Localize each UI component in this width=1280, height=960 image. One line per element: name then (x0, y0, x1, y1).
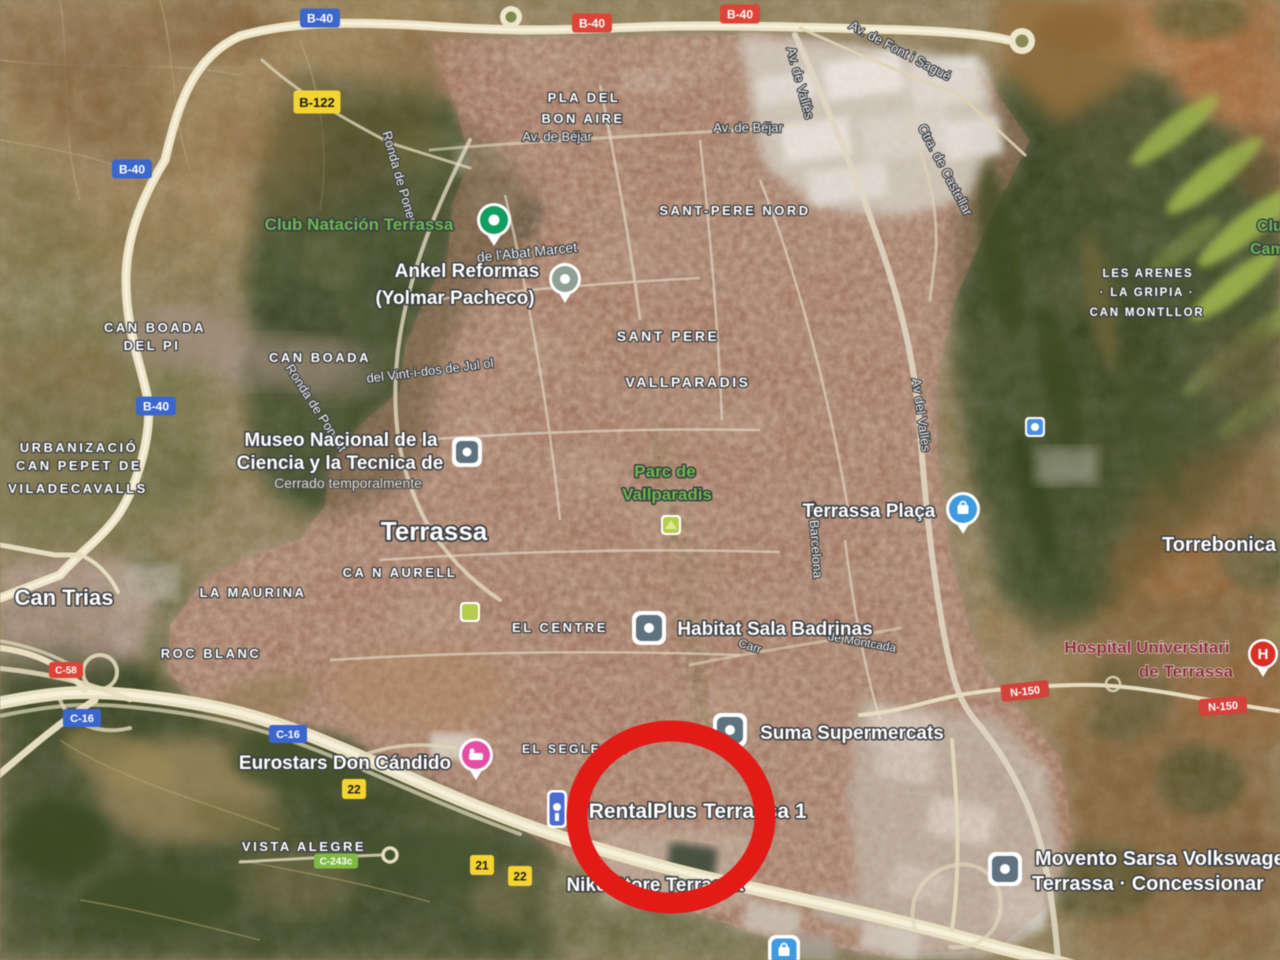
svg-text:EL CENTRE: EL CENTRE (512, 620, 608, 635)
svg-text:Club: Club (1257, 218, 1280, 235)
svg-text:Camp: Camp (1250, 241, 1280, 258)
svg-text:SANT-PERE NORD: SANT-PERE NORD (659, 203, 810, 218)
svg-text:ROC BLANC: ROC BLANC (161, 646, 262, 661)
svg-text:DEL PI: DEL PI (124, 338, 181, 353)
svg-text:22: 22 (513, 870, 527, 884)
svg-text:Museo Nacional de la: Museo Nacional de la (244, 430, 438, 451)
svg-text:22: 22 (347, 783, 361, 797)
svg-text:CA N AURELL: CA N AURELL (343, 565, 458, 580)
svg-text:B-40: B-40 (119, 163, 145, 177)
svg-text:Can Trias: Can Trias (14, 585, 113, 610)
svg-text:CAN BOADA: CAN BOADA (269, 350, 371, 365)
svg-text:Suma Supermercats: Suma Supermercats (760, 723, 944, 744)
svg-text:C-58: C-58 (55, 666, 77, 677)
svg-text:BON AIRE: BON AIRE (541, 111, 624, 126)
svg-text:Vallparadis: Vallparadis (622, 485, 712, 504)
svg-text:· LA GRIPIA ·: · LA GRIPIA · (1100, 287, 1195, 299)
svg-text:de Terrassa: de Terrassa (1139, 662, 1234, 681)
svg-text:URBANIZACIÓ: URBANIZACIÓ (20, 440, 139, 455)
svg-text:CAN BOADA: CAN BOADA (104, 320, 206, 335)
svg-text:Eurostars Don Cándido: Eurostars Don Cándido (239, 753, 451, 774)
svg-text:Movento Sarsa Volkswagen: Movento Sarsa Volkswagen (1035, 848, 1280, 870)
svg-text:(Yolmar Pacheco): (Yolmar Pacheco) (375, 288, 534, 309)
svg-text:C-16: C-16 (276, 729, 300, 741)
svg-text:B-122: B-122 (299, 95, 334, 110)
svg-text:Cerrado temporalmente: Cerrado temporalmente (274, 475, 422, 491)
svg-text:H: H (1258, 646, 1269, 663)
svg-text:Terrassa · Concessionar: Terrassa · Concessionar (1032, 873, 1264, 895)
svg-text:Parc de: Parc de (634, 462, 695, 481)
svg-text:Hospital Universitari: Hospital Universitari (1064, 638, 1229, 657)
svg-text:C-243c: C-243c (320, 857, 353, 868)
svg-text:VILADECAVALLS: VILADECAVALLS (8, 481, 148, 496)
svg-text:Terrassa Plaça: Terrassa Plaça (803, 501, 936, 522)
svg-text:Terrassa: Terrassa (381, 516, 488, 546)
svg-text:SANT PERE: SANT PERE (617, 328, 720, 344)
svg-text:LA MAURINA: LA MAURINA (200, 585, 307, 600)
svg-text:PLA DEL: PLA DEL (548, 90, 621, 105)
svg-text:CAN MONTLLOR: CAN MONTLLOR (1090, 307, 1205, 319)
svg-text:B-40: B-40 (727, 8, 753, 22)
svg-text:Av. de Béjar: Av. de Béjar (522, 129, 592, 144)
svg-text:N-150: N-150 (1208, 700, 1239, 714)
svg-text:Av. de Béjar: Av. de Béjar (713, 120, 783, 135)
svg-text:Ciencia y la Tecnica de: Ciencia y la Tecnica de (237, 453, 444, 474)
svg-text:Ankel Reformas: Ankel Reformas (395, 261, 540, 282)
svg-text:VISTA ALEGRE: VISTA ALEGRE (242, 839, 366, 854)
svg-text:B-40: B-40 (143, 400, 169, 414)
svg-text:Habitat Sala Badrinas: Habitat Sala Badrinas (677, 619, 872, 640)
svg-text:VALLPARADIS: VALLPARADIS (626, 374, 751, 390)
svg-text:CAN PEPET DE: CAN PEPET DE (16, 458, 142, 473)
svg-text:B-40: B-40 (579, 17, 605, 31)
svg-text:LES ARENES: LES ARENES (1102, 268, 1193, 280)
svg-text:C-16: C-16 (70, 713, 94, 725)
svg-text:Torrebonica: Torrebonica (1162, 534, 1277, 556)
svg-text:B-40: B-40 (307, 12, 333, 26)
svg-text:21: 21 (475, 859, 489, 873)
svg-text:Club Natación Terrassa: Club Natación Terrassa (265, 215, 454, 234)
